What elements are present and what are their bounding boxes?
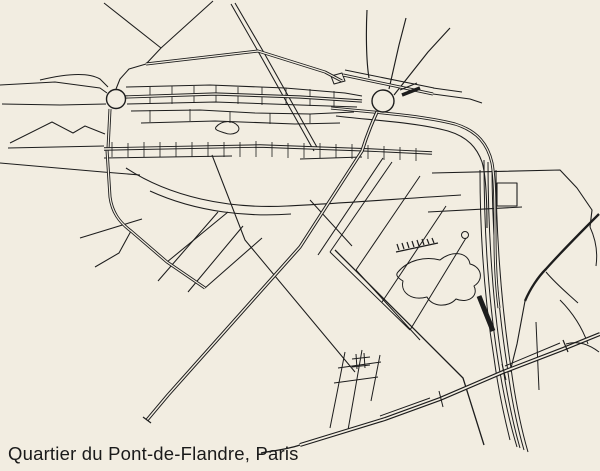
- map-caption: Quartier du Pont-de-Flandre, Paris: [8, 443, 299, 464]
- map-canvas: [0, 0, 600, 471]
- map-poster: Quartier du Pont-de-Flandre, Paris: [0, 0, 600, 471]
- roundabout: [372, 90, 394, 112]
- roundabout: [107, 90, 126, 109]
- map-background: [0, 0, 600, 471]
